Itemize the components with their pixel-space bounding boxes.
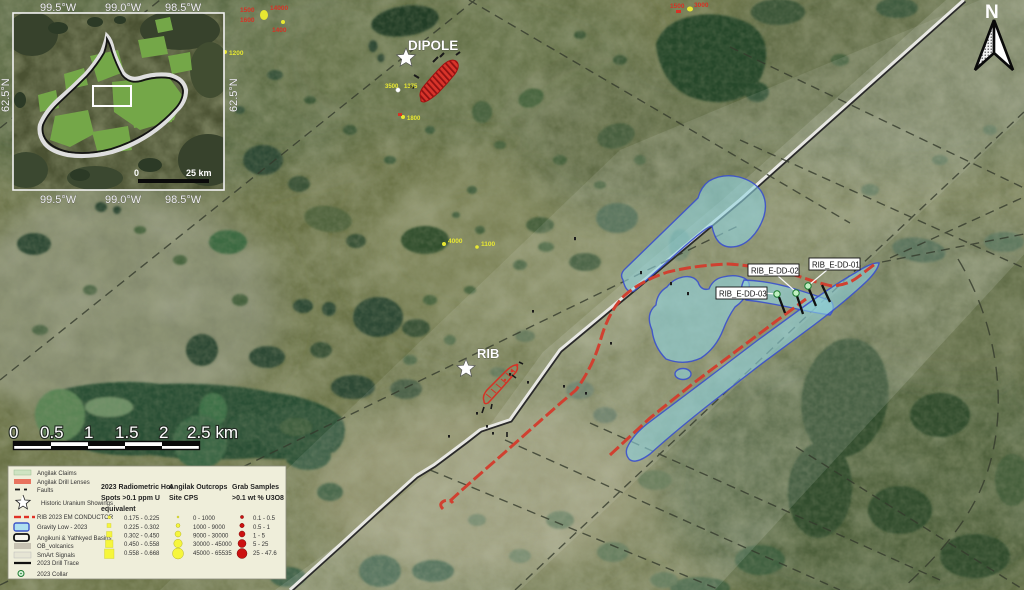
svg-text:Angilak Claims: Angilak Claims — [37, 471, 77, 477]
svg-text:3000: 3000 — [694, 2, 709, 9]
svg-text:1400: 1400 — [272, 27, 287, 34]
svg-text:equivalent: equivalent — [101, 506, 136, 513]
svg-text:25 km: 25 km — [186, 168, 212, 178]
svg-text:SmArt Signals: SmArt Signals — [37, 553, 75, 559]
svg-text:0.302 - 0.450: 0.302 - 0.450 — [124, 534, 160, 540]
svg-text:5 - 25: 5 - 25 — [253, 542, 269, 548]
svg-text:Faults: Faults — [37, 488, 53, 494]
svg-text:RIB_E-DD-02: RIB_E-DD-02 — [751, 267, 799, 276]
svg-text:0.450 - 0.558: 0.450 - 0.558 — [124, 542, 160, 548]
svg-text:Spots >0.1 ppm U: Spots >0.1 ppm U — [101, 495, 160, 502]
svg-text:1000 - 9000: 1000 - 9000 — [193, 525, 226, 531]
svg-text:2023 Radiometric Hot: 2023 Radiometric Hot — [101, 484, 173, 491]
svg-text:98.5°W: 98.5°W — [165, 2, 202, 14]
svg-text:Gravity Low - 2023: Gravity Low - 2023 — [37, 525, 88, 531]
svg-text:62.5°N: 62.5°N — [0, 78, 12, 112]
svg-text:99.0°W: 99.0°W — [105, 2, 142, 14]
svg-text:1.5: 1.5 — [115, 423, 139, 442]
svg-text:1500: 1500 — [240, 7, 255, 14]
svg-text:RIB_E-DD-01: RIB_E-DD-01 — [812, 261, 860, 270]
svg-text:1600: 1600 — [240, 17, 255, 24]
svg-text:0.1 - 0.5: 0.1 - 0.5 — [253, 516, 276, 522]
svg-text:OB_volcanics: OB_volcanics — [37, 544, 74, 550]
svg-text:Grab Samples: Grab Samples — [232, 484, 279, 491]
svg-text:1: 1 — [84, 423, 93, 442]
svg-text:2023 Collar: 2023 Collar — [37, 572, 68, 578]
svg-text:1 - 5: 1 - 5 — [253, 534, 266, 540]
svg-text:N: N — [985, 2, 999, 23]
svg-text:0: 0 — [9, 423, 18, 442]
svg-text:0.5 - 1: 0.5 - 1 — [253, 525, 271, 531]
svg-text:30000 - 45000: 30000 - 45000 — [193, 542, 232, 548]
svg-text:0.225 - 0.302: 0.225 - 0.302 — [124, 525, 160, 531]
svg-text:RIB 2023 EM CONDUCTOR: RIB 2023 EM CONDUCTOR — [37, 515, 114, 521]
svg-text:2: 2 — [159, 423, 168, 442]
svg-text:1375: 1375 — [404, 84, 418, 90]
svg-text:1500: 1500 — [670, 3, 685, 10]
svg-text:0 - 1000: 0 - 1000 — [193, 516, 216, 522]
svg-text:98.5°W: 98.5°W — [165, 194, 202, 206]
svg-text:45000 - 65535: 45000 - 65535 — [193, 551, 232, 557]
svg-text:0.5: 0.5 — [40, 423, 64, 442]
svg-text:2023 Drill Trace: 2023 Drill Trace — [37, 561, 80, 567]
svg-text:1100: 1100 — [481, 241, 495, 248]
svg-text:14000: 14000 — [270, 5, 288, 12]
svg-text:1200: 1200 — [229, 50, 244, 57]
svg-text:RIB: RIB — [477, 346, 499, 361]
svg-text:9000 - 30000: 9000 - 30000 — [193, 534, 229, 540]
svg-text:0.175 - 0.225: 0.175 - 0.225 — [124, 516, 160, 522]
svg-text:Site CPS: Site CPS — [169, 495, 199, 502]
svg-text:Angikuni & Yathkyed Basins: Angikuni & Yathkyed Basins — [37, 536, 112, 542]
svg-text:99.5°W: 99.5°W — [40, 194, 77, 206]
svg-text:0: 0 — [134, 168, 139, 178]
svg-text:62.5°N: 62.5°N — [228, 78, 240, 112]
svg-text:0.558 - 0.668: 0.558 - 0.668 — [124, 551, 160, 557]
svg-text:2.5 km: 2.5 km — [187, 423, 238, 442]
svg-text:RIB_E-DD-03: RIB_E-DD-03 — [719, 290, 767, 299]
svg-text:99.0°W: 99.0°W — [105, 194, 142, 206]
svg-text:25 - 47.6: 25 - 47.6 — [253, 551, 277, 557]
svg-text:DIPOLE: DIPOLE — [408, 38, 458, 53]
svg-text:Angilak Drill Lenses: Angilak Drill Lenses — [37, 480, 90, 486]
svg-text:99.5°W: 99.5°W — [40, 2, 77, 14]
svg-text:>0.1 wt % U3O8: >0.1 wt % U3O8 — [232, 495, 284, 502]
svg-text:3500: 3500 — [385, 84, 399, 90]
svg-text:1800: 1800 — [407, 116, 421, 122]
svg-text:Angilak Outcrops: Angilak Outcrops — [169, 484, 227, 491]
svg-text:4000: 4000 — [448, 238, 463, 245]
